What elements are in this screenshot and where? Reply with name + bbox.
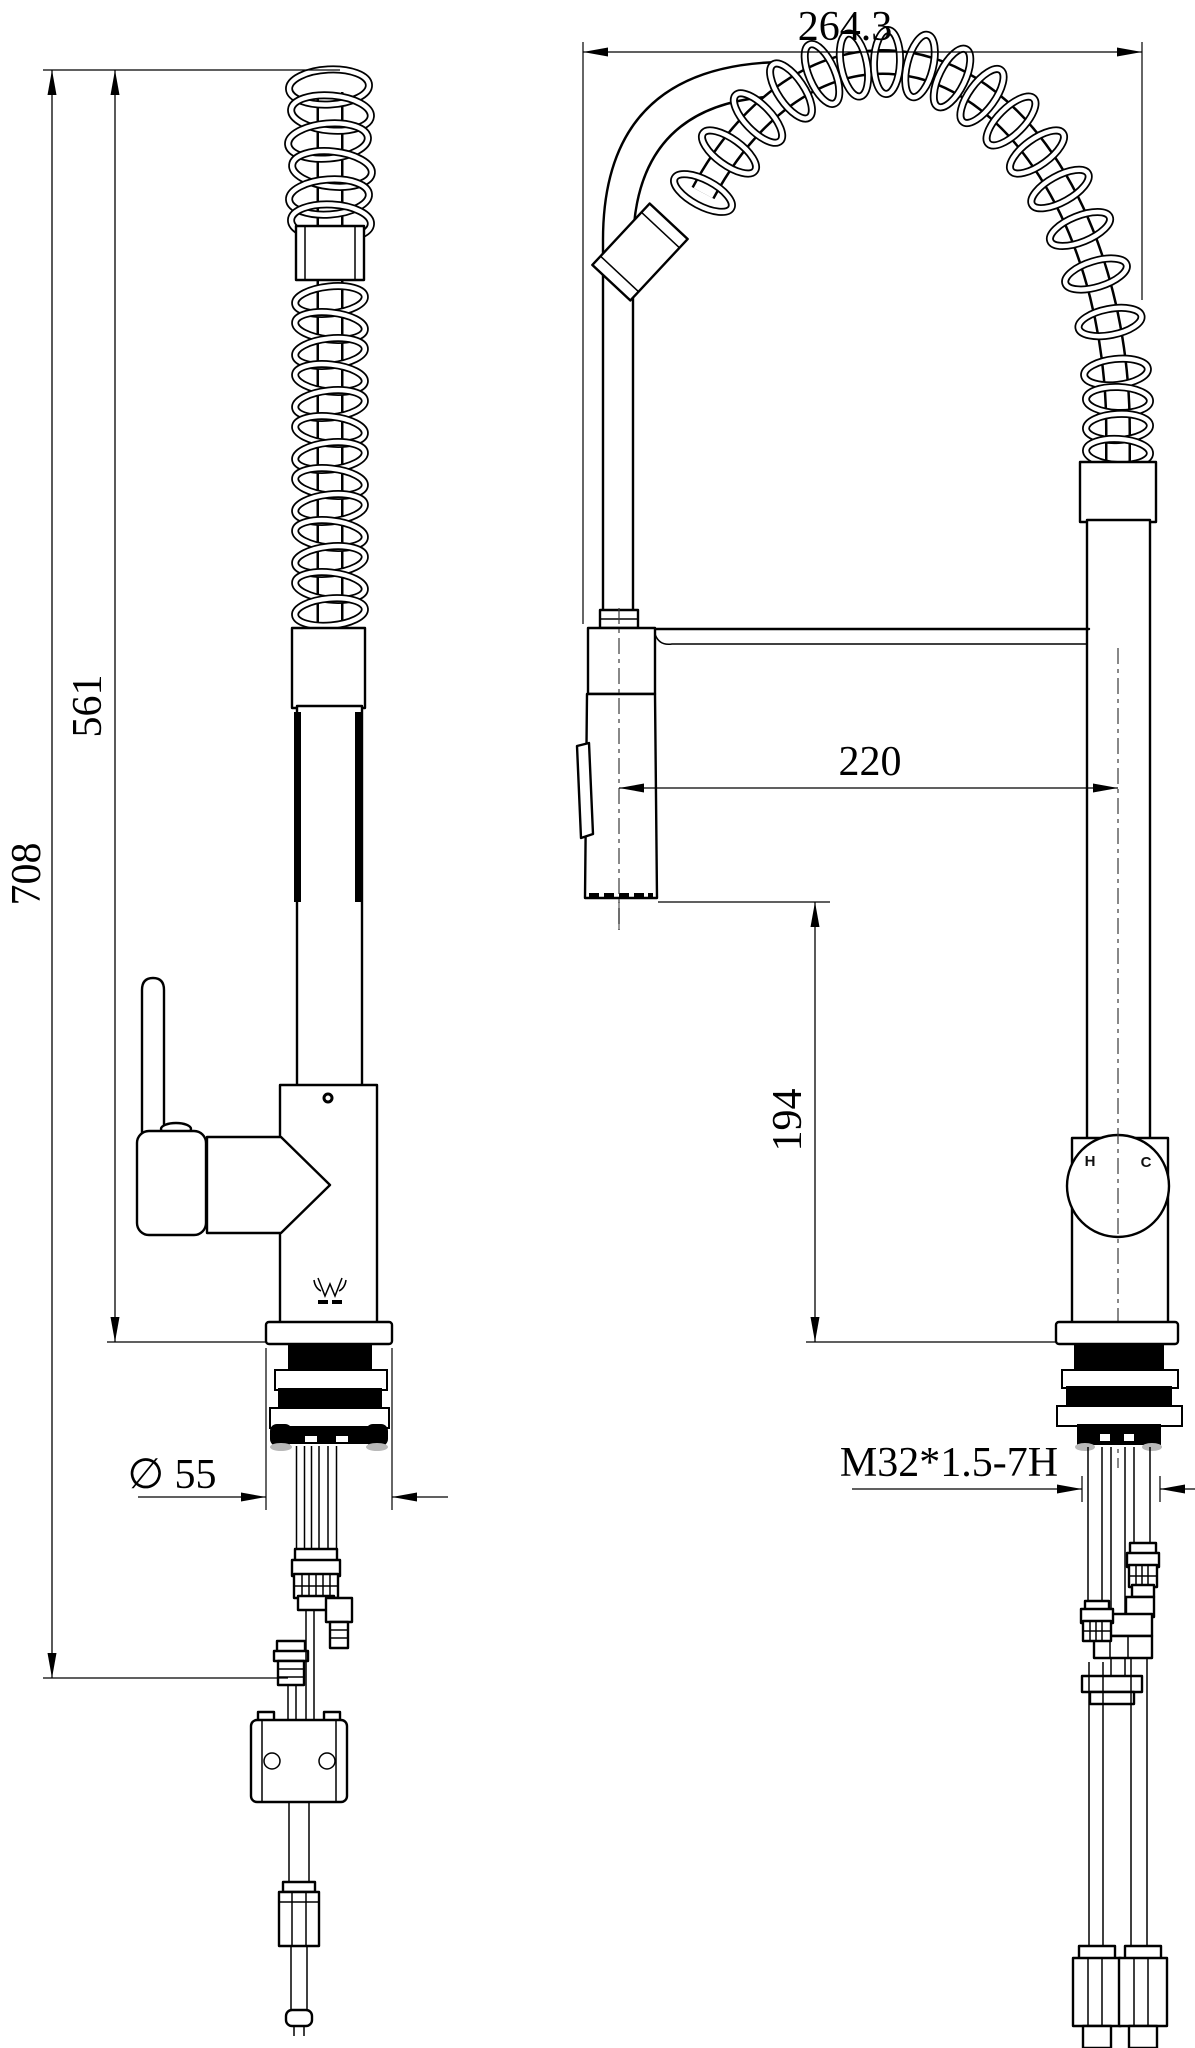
spray-head-front xyxy=(577,694,657,930)
spring-coil-top-side xyxy=(287,67,374,241)
dim-spout-reach: 220 xyxy=(839,739,902,785)
spring-hose-tube-front xyxy=(703,62,1118,462)
hose-coupling-front xyxy=(592,204,687,301)
dim-base-diameter: ∅ 55 xyxy=(127,1452,216,1498)
dim-outlet-height: 194 xyxy=(765,1089,811,1152)
dimension-220: 220 xyxy=(619,739,1118,788)
cold-marking: C xyxy=(1141,1154,1152,1171)
spray-clip xyxy=(577,743,593,838)
supply-lines-front xyxy=(1073,1447,1167,2048)
dimension-194: 194 xyxy=(658,902,1056,1342)
spray-holder-front xyxy=(588,628,655,694)
dim-total-width: 264.3 xyxy=(798,4,893,50)
handle-base-side xyxy=(137,1131,206,1235)
dim-thread-spec: M32*1.5-7H xyxy=(840,1440,1058,1486)
dimension-m32: M32*1.5-7H xyxy=(840,1440,1195,1502)
technical-drawing-canvas: 708 561 ∅ 55 xyxy=(0,0,1195,2048)
spout-collar-front xyxy=(1080,462,1156,522)
dim-total-height: 708 xyxy=(4,843,50,906)
hose-coupling-side xyxy=(296,226,364,280)
riser-tube-side xyxy=(297,706,362,1086)
handle-lever-side xyxy=(142,978,164,1136)
mounting-hardware-front xyxy=(1057,1344,1182,1451)
side-view-faucet: 708 561 ∅ 55 xyxy=(4,67,448,2036)
spout-collar-side xyxy=(292,628,365,708)
front-view-faucet: H C xyxy=(577,4,1195,2048)
base-flange-front xyxy=(1056,1322,1178,1344)
supply-lines-side xyxy=(251,1446,352,2036)
support-pipe-front xyxy=(603,62,790,626)
hot-marking: H xyxy=(1085,1153,1096,1170)
mounting-hardware-side xyxy=(270,1344,389,1451)
dim-spout-height: 561 xyxy=(65,675,111,738)
support-arm-front xyxy=(655,629,1089,644)
base-flange-side xyxy=(266,1322,392,1344)
